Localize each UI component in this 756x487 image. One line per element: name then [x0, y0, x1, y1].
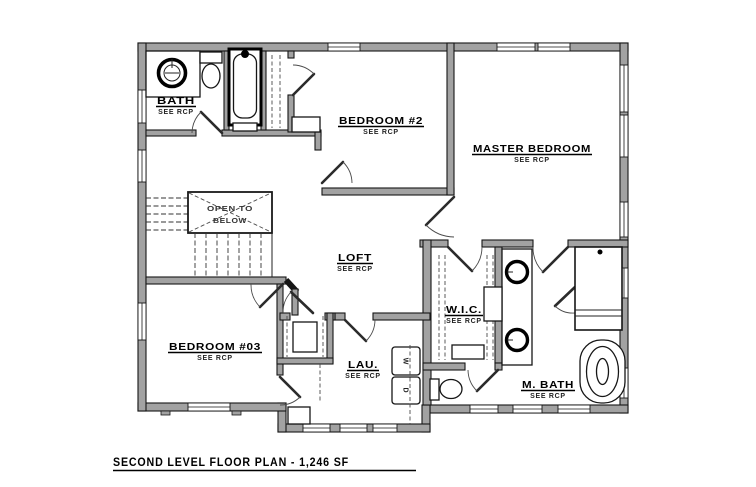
open-to-below-label-2: BELOW [213, 216, 247, 225]
window-sill-tick [232, 411, 241, 415]
wall-master-south [482, 240, 533, 247]
master-bath-door [533, 247, 568, 272]
vanity-cabinet [484, 287, 502, 321]
toilet-icon [440, 380, 462, 399]
room-note-master: SEE RCP [514, 157, 550, 164]
room-label-loft: LOFT [338, 252, 372, 264]
wall-bedroom2-south [322, 188, 454, 195]
room-label-bath: BATH [157, 95, 195, 107]
wic-door [448, 247, 482, 271]
sheet-title: SECOND LEVEL FLOOR PLAN - 1,246 SF [113, 457, 416, 471]
bathtub-step [233, 123, 257, 131]
wall-bedroom2-east [447, 43, 454, 195]
wall-closet-post [280, 313, 290, 320]
wall-stairs-south [146, 277, 286, 284]
wall-bedroom2-west-post [288, 51, 294, 58]
open-to-below-label-1: OPEN TO [207, 204, 253, 213]
room-note-bedroom2: SEE RCP [363, 129, 399, 136]
wall-closet-south [277, 358, 333, 364]
hall-niche [288, 407, 310, 424]
room-note-loft: SEE RCP [337, 266, 373, 273]
room-label-bedroom03: BEDROOM #03 [169, 341, 261, 353]
floor-plan-sheet: BATH SEE RCP BEDROOM #2 SEE RCP MASTER B… [0, 0, 756, 487]
bedroom2-loft-door [322, 162, 352, 183]
wall-wic-south [423, 363, 465, 370]
bathtub-faucet [241, 50, 249, 58]
room-note-bath: SEE RCP [158, 109, 194, 116]
floor-plan-drawing: BATH SEE RCP BEDROOM #2 SEE RCP MASTER B… [0, 0, 756, 487]
room-label-mbath: M. BATH [522, 379, 574, 391]
window-sill-tick [161, 411, 170, 415]
water-closet-door [468, 370, 498, 391]
shower-head [598, 250, 603, 255]
wall-bath-south-left [146, 130, 196, 136]
stair-landing-treads [146, 198, 188, 230]
closet-shelf [293, 322, 317, 352]
shower-icon [575, 247, 622, 330]
fixtures [146, 49, 625, 424]
master-bedroom-door [426, 197, 454, 237]
dryer-label: D [402, 387, 409, 392]
room-note-wic: SEE RCP [446, 318, 482, 325]
wall-master-south [568, 240, 628, 247]
room-label-master: MASTER BEDROOM [473, 143, 591, 155]
wall-laundry-north-post [335, 313, 345, 320]
exterior-walls [138, 43, 628, 432]
bedroom2-shelf [292, 117, 320, 132]
wall-closet-east [327, 313, 333, 363]
windows [138, 43, 628, 432]
bedroom03-door-lower [280, 377, 300, 405]
room-note-laundry: SEE RCP [345, 373, 381, 380]
toilet-tank [430, 379, 439, 400]
room-label-laundry: LAU. [348, 359, 378, 371]
washer-label: W [402, 358, 409, 365]
room-note-bedroom03: SEE RCP [197, 355, 233, 362]
wall-laundry-north [373, 313, 430, 320]
soaking-tub-drain [597, 359, 609, 385]
toilet-tank [200, 52, 222, 63]
wic-shelf [452, 345, 484, 359]
room-note-mbath: SEE RCP [530, 393, 566, 400]
wall-bedroom2-west-lower [315, 132, 321, 150]
shower-door [555, 287, 575, 313]
toilet-icon [202, 64, 220, 88]
plan-title: SECOND LEVEL FLOOR PLAN - 1,246 SF [113, 457, 349, 469]
bathtub-inner [234, 54, 257, 118]
stair-run-treads [195, 233, 272, 277]
room-label-bedroom2: BEDROOM #2 [339, 115, 423, 127]
room-label-wic: W.I.C. [446, 304, 482, 316]
bedroom2-door [293, 65, 314, 95]
laundry-door [345, 320, 375, 341]
